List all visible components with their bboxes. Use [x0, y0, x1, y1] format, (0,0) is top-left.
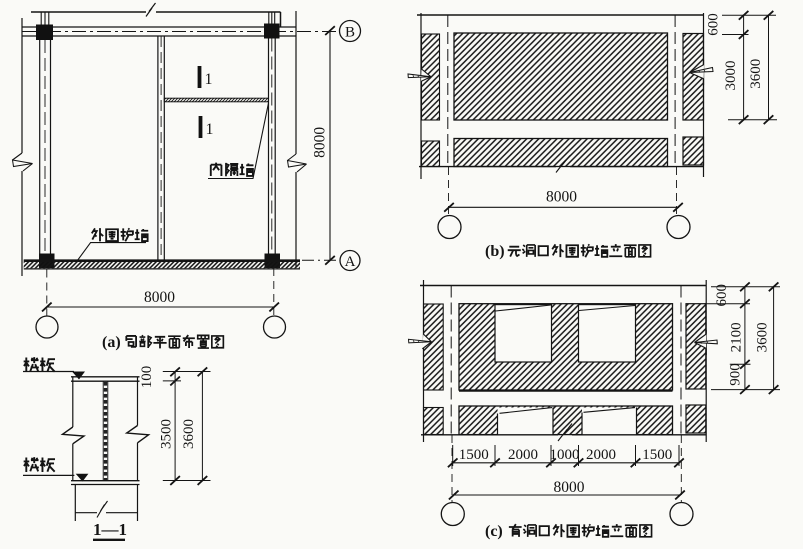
svg-text:1500: 1500 [459, 447, 489, 463]
svg-text:600: 600 [714, 284, 730, 307]
svg-text:1: 1 [205, 71, 213, 88]
svg-text:(b): (b) [485, 243, 505, 260]
svg-text:1000: 1000 [550, 447, 580, 463]
svg-text:3000: 3000 [723, 61, 739, 91]
svg-text:3600: 3600 [755, 322, 771, 352]
svg-text:(a): (a) [102, 334, 121, 351]
svg-text:3500: 3500 [158, 419, 174, 449]
svg-text:(c): (c) [485, 523, 503, 540]
svg-text:1—1: 1—1 [93, 520, 127, 539]
svg-text:8000: 8000 [312, 127, 329, 158]
svg-text:B: B [345, 25, 355, 41]
svg-text:100: 100 [139, 366, 155, 389]
svg-text:2000: 2000 [586, 447, 616, 463]
svg-text:900: 900 [728, 363, 744, 386]
svg-text:A: A [345, 254, 356, 270]
svg-text:3600: 3600 [748, 59, 764, 89]
svg-text:2100: 2100 [728, 322, 744, 352]
svg-text:1: 1 [206, 121, 214, 138]
svg-text:8000: 8000 [554, 479, 585, 496]
svg-text:1500: 1500 [642, 447, 672, 463]
svg-text:3600: 3600 [181, 419, 197, 449]
svg-text:600: 600 [706, 13, 722, 36]
svg-text:8000: 8000 [546, 189, 577, 206]
svg-text:8000: 8000 [144, 289, 175, 306]
svg-text:2000: 2000 [508, 447, 538, 463]
